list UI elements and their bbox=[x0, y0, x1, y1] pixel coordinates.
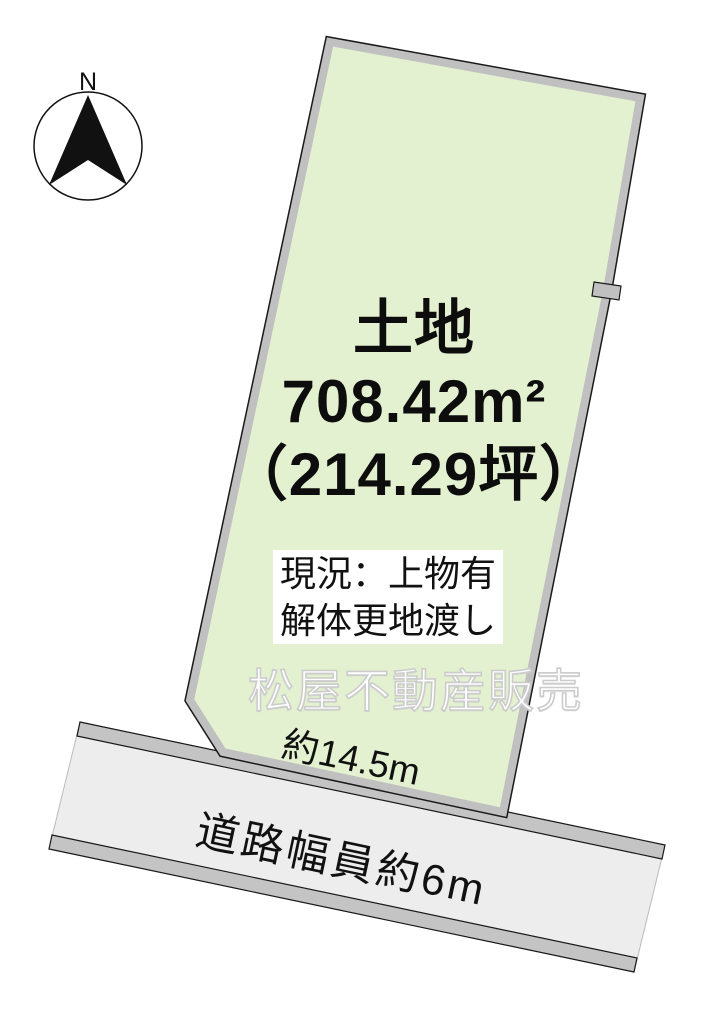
status-line-1: 現況：上物有 bbox=[273, 550, 503, 597]
north-compass: N bbox=[34, 68, 142, 200]
status-line-2: 解体更地渡し bbox=[273, 597, 503, 644]
land-area-sqm: 708.42m² bbox=[228, 365, 601, 438]
land-title: 土地 bbox=[228, 292, 601, 365]
status-box: 現況：上物有 解体更地渡し bbox=[273, 550, 503, 644]
parcel-title-block: 土地 708.42m² （214.29坪） bbox=[228, 292, 601, 511]
land-area-tsubo: （214.29坪） bbox=[228, 438, 601, 511]
land-plan-diagram: N 土地 708.42m² （214.29坪） 現況：上物有 解体更地渡し 松屋… bbox=[0, 0, 706, 1012]
company-watermark: 松屋不動産販売 bbox=[248, 655, 584, 721]
compass-north-label: N bbox=[79, 68, 97, 96]
